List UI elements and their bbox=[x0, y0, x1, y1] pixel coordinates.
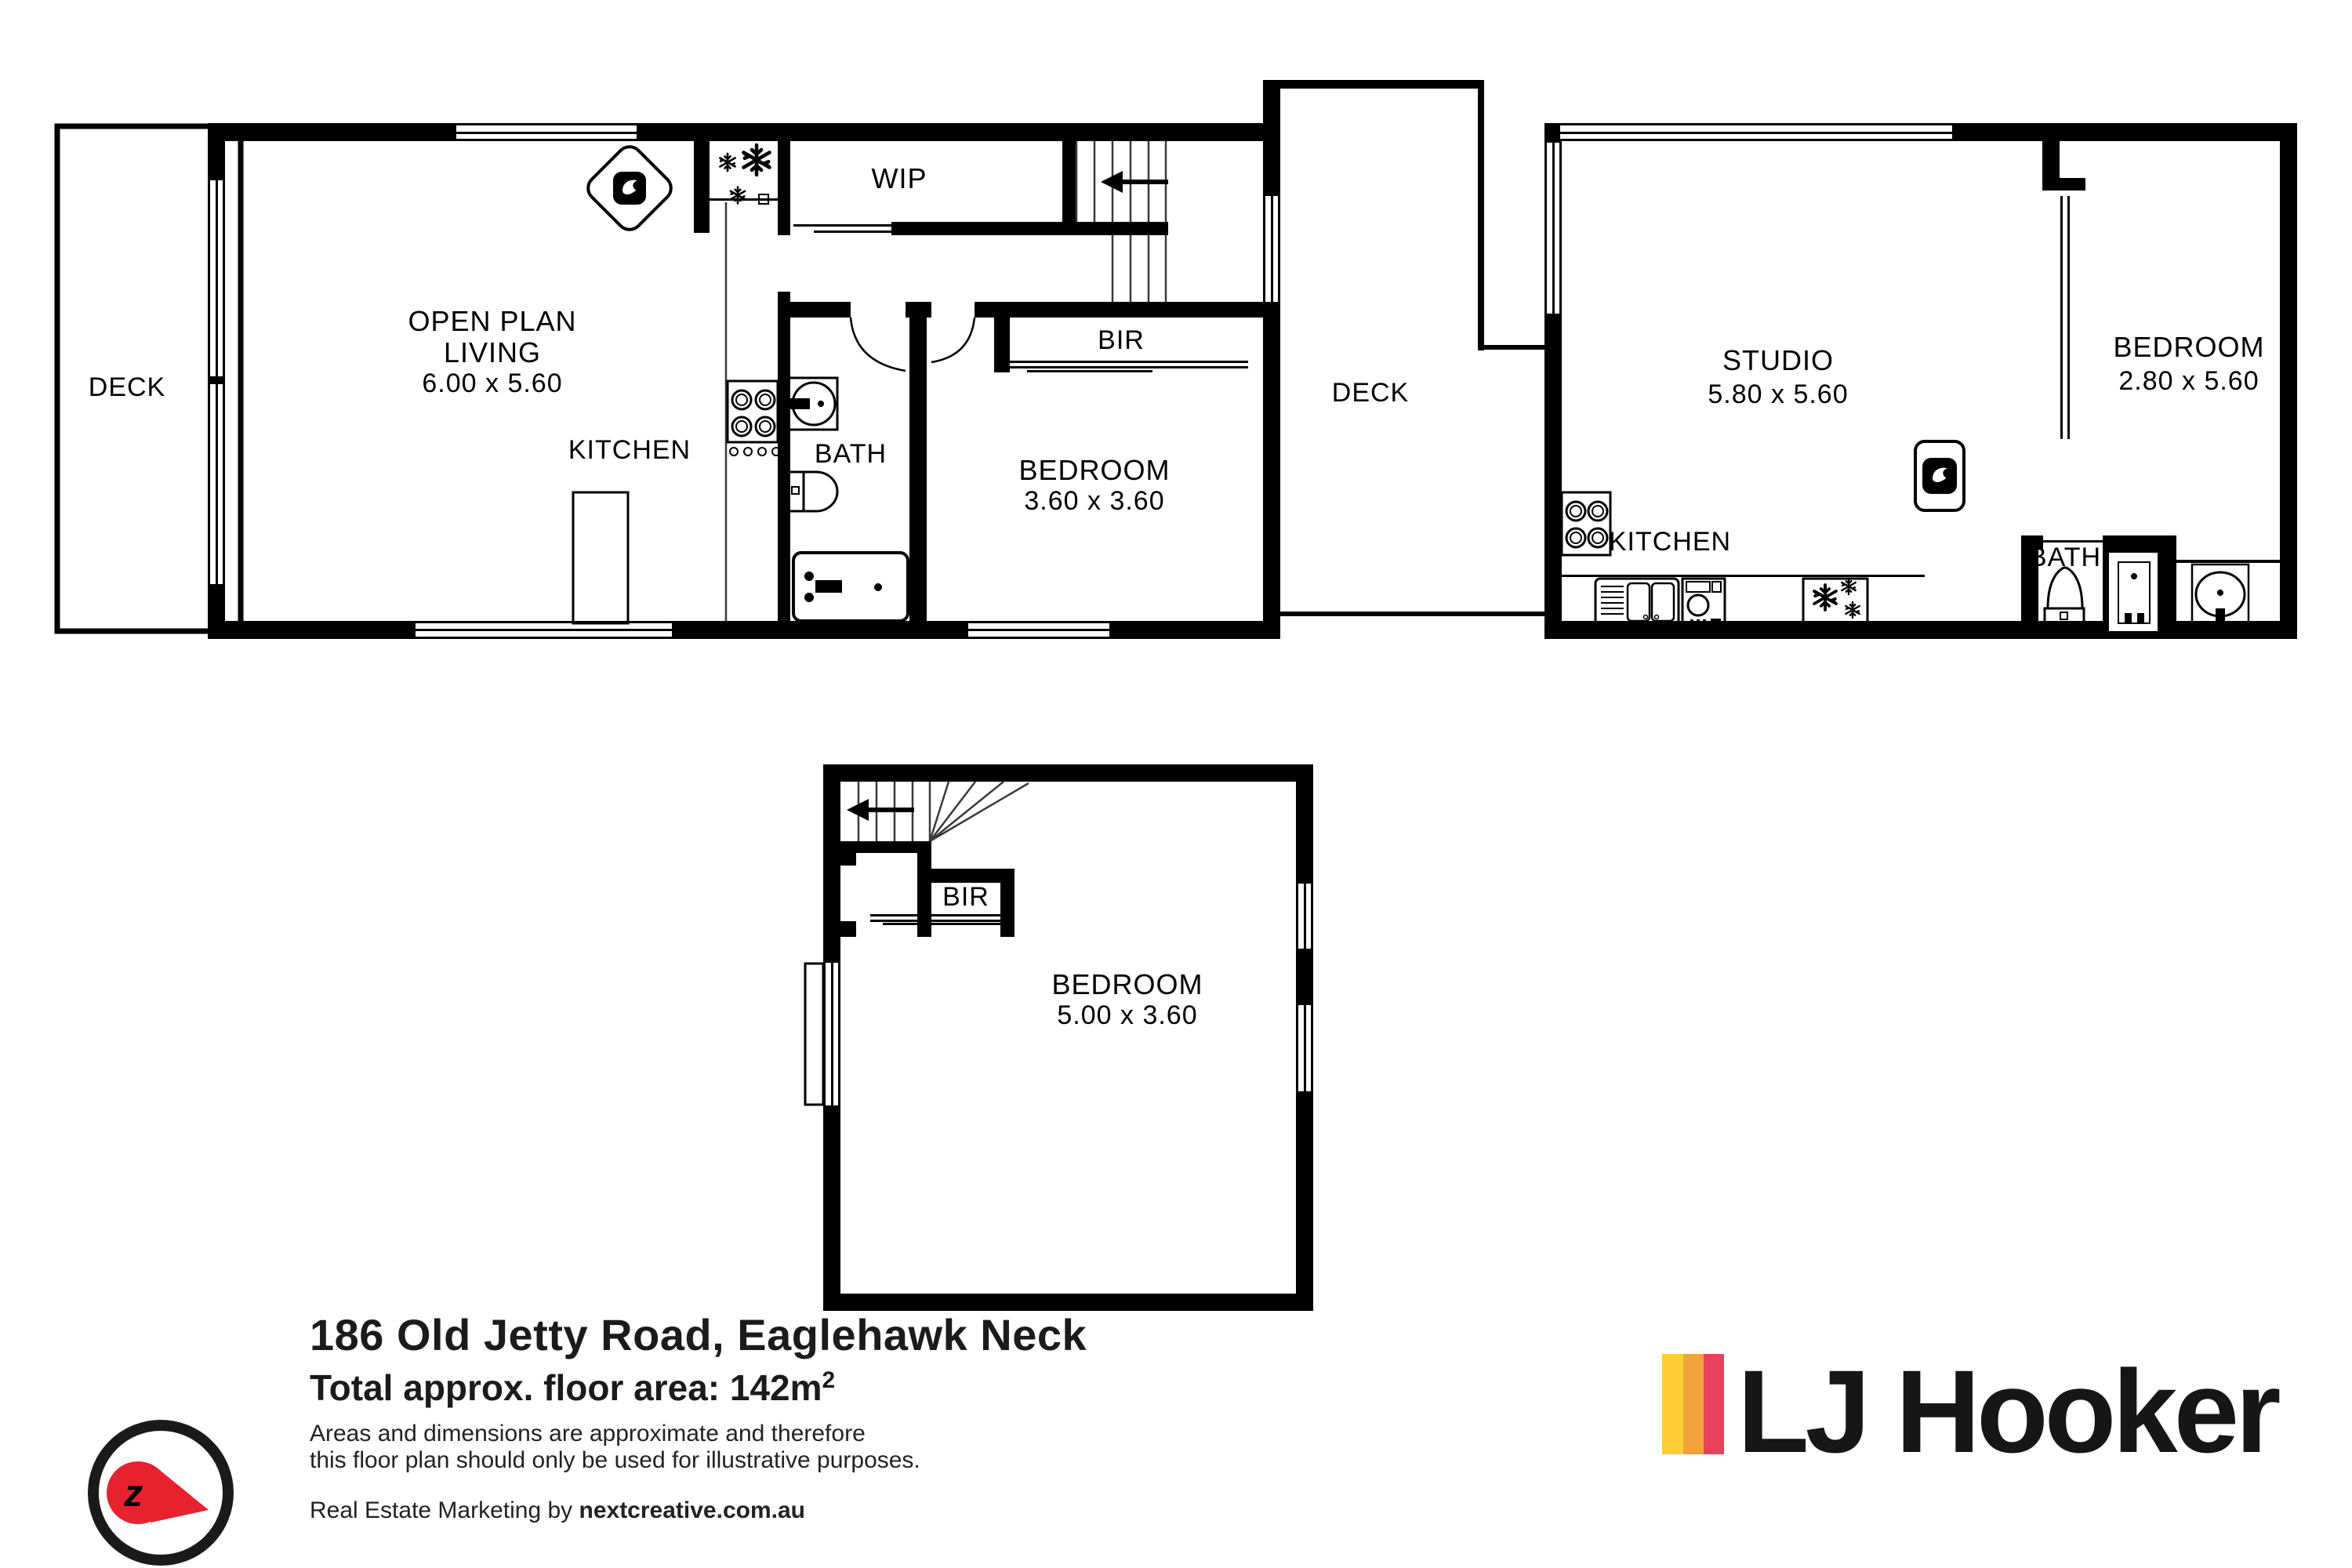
living-label-line2: LIVING bbox=[444, 336, 541, 368]
address-title: 186 Old Jetty Road, Eaglehawk Neck bbox=[310, 1310, 1087, 1359]
kitchen-right-label: KITCHEN bbox=[1609, 527, 1731, 557]
kitchen-left-label: KITCHEN bbox=[568, 435, 691, 465]
window-top-studio bbox=[1560, 123, 1952, 141]
footer: z 186 Old Jetty Road, Eaglehawk Neck Tot… bbox=[93, 1310, 2280, 1560]
disclaimer-line1: Areas and dimensions are approximate and… bbox=[310, 1421, 866, 1446]
deck-middle-label: DECK bbox=[1332, 378, 1409, 408]
logo-stripe-yellow bbox=[1662, 1354, 1683, 1454]
left-building-interior-walls bbox=[694, 123, 1280, 621]
window-top bbox=[456, 123, 637, 141]
deck-left-label: DECK bbox=[89, 372, 165, 402]
heat-pump-icon bbox=[1915, 441, 1964, 510]
bedroom-right-label: BEDROOM bbox=[2113, 331, 2264, 363]
floor-area-text: Total approx. floor area: 142m2 bbox=[310, 1367, 835, 1408]
logo-stripe-red bbox=[1704, 1354, 1724, 1454]
basin-icon-left bbox=[788, 378, 837, 430]
bath-door-swing bbox=[851, 318, 906, 371]
bir-lower-label: BIR bbox=[942, 882, 989, 912]
bathtub-icon bbox=[793, 553, 908, 621]
cooktop-icon-left bbox=[728, 381, 780, 456]
wood-heater-icon bbox=[583, 142, 677, 235]
window-bottom-living bbox=[416, 621, 672, 639]
main-level-plan: DECK bbox=[57, 80, 2297, 639]
studio-label: STUDIO bbox=[1722, 344, 1834, 376]
ljhooker-logo: LJ Hooker bbox=[1662, 1345, 2280, 1477]
bir-main-label: BIR bbox=[1098, 325, 1145, 355]
marketing-credit: Real Estate Marketing by nextcreative.co… bbox=[310, 1497, 805, 1523]
sliding-door-east-to-deck bbox=[1263, 196, 1280, 302]
bath-right-label: BATH bbox=[2029, 543, 2101, 572]
wip-label: WIP bbox=[872, 162, 927, 194]
bath-left-fixtures bbox=[788, 378, 908, 621]
stairs-lower bbox=[847, 782, 1029, 841]
deck-middle: DECK bbox=[1263, 80, 1544, 616]
floorplan-canvas: DECK bbox=[0, 0, 2352, 1568]
window-lower-left bbox=[805, 963, 840, 1105]
floorplan-page: DECK bbox=[0, 0, 2352, 1568]
logo-stripe-orange bbox=[1683, 1354, 1704, 1454]
compass-letter: z bbox=[123, 1473, 143, 1515]
studio-dims: 5.80 x 5.60 bbox=[1708, 379, 1848, 409]
bedroom-lower-dims: 5.00 x 3.60 bbox=[1057, 1000, 1197, 1030]
lower-level-plan: BIR BEDROOM 5.00 x 3.60 bbox=[805, 764, 1313, 1311]
sliding-door-west bbox=[208, 180, 225, 584]
bedroom-door-swing bbox=[931, 318, 975, 362]
island-bench bbox=[573, 492, 628, 623]
stair-direction-icon-lower bbox=[847, 799, 914, 821]
compass-icon: z bbox=[93, 1425, 228, 1560]
stairs-main bbox=[1076, 141, 1168, 302]
toilet-icon-left bbox=[788, 472, 837, 511]
dishwasher-icon bbox=[1682, 579, 1725, 626]
kitchen-left-fittings bbox=[573, 145, 780, 623]
logo-text: LJ Hooker bbox=[1737, 1345, 2280, 1477]
sink-icon-right bbox=[1595, 579, 1679, 626]
bedroom-lower-label: BEDROOM bbox=[1051, 968, 1203, 1000]
living-label-line1: OPEN PLAN bbox=[408, 305, 576, 337]
window-bottom-bedroom bbox=[968, 621, 1109, 639]
bedroom-right-dims: 2.80 x 5.60 bbox=[2118, 366, 2259, 396]
shower-icon bbox=[2106, 550, 2161, 634]
living-dims: 6.00 x 5.60 bbox=[422, 368, 562, 398]
sliding-door-west-studio bbox=[1544, 143, 1562, 314]
window-lower-right-1 bbox=[1296, 884, 1313, 949]
toilet-icon-right bbox=[2045, 568, 2084, 626]
disclaimer-line2: this floor plan should only be used for … bbox=[310, 1447, 920, 1473]
left-building-walls bbox=[208, 80, 1280, 639]
fridge-icon-right bbox=[1803, 579, 1867, 626]
stair-direction-icon-main bbox=[1101, 171, 1168, 193]
bedroom-main-dims: 3.60 x 3.60 bbox=[1024, 486, 1164, 516]
basin-icon-right bbox=[2192, 564, 2249, 626]
cooktop-icon-right bbox=[1562, 492, 1610, 555]
bedroom-main-label: BEDROOM bbox=[1018, 454, 1170, 486]
window-lower-right-2 bbox=[1296, 1005, 1313, 1091]
right-building-windows bbox=[1544, 123, 1952, 314]
bath-left-label: BATH bbox=[815, 439, 887, 469]
